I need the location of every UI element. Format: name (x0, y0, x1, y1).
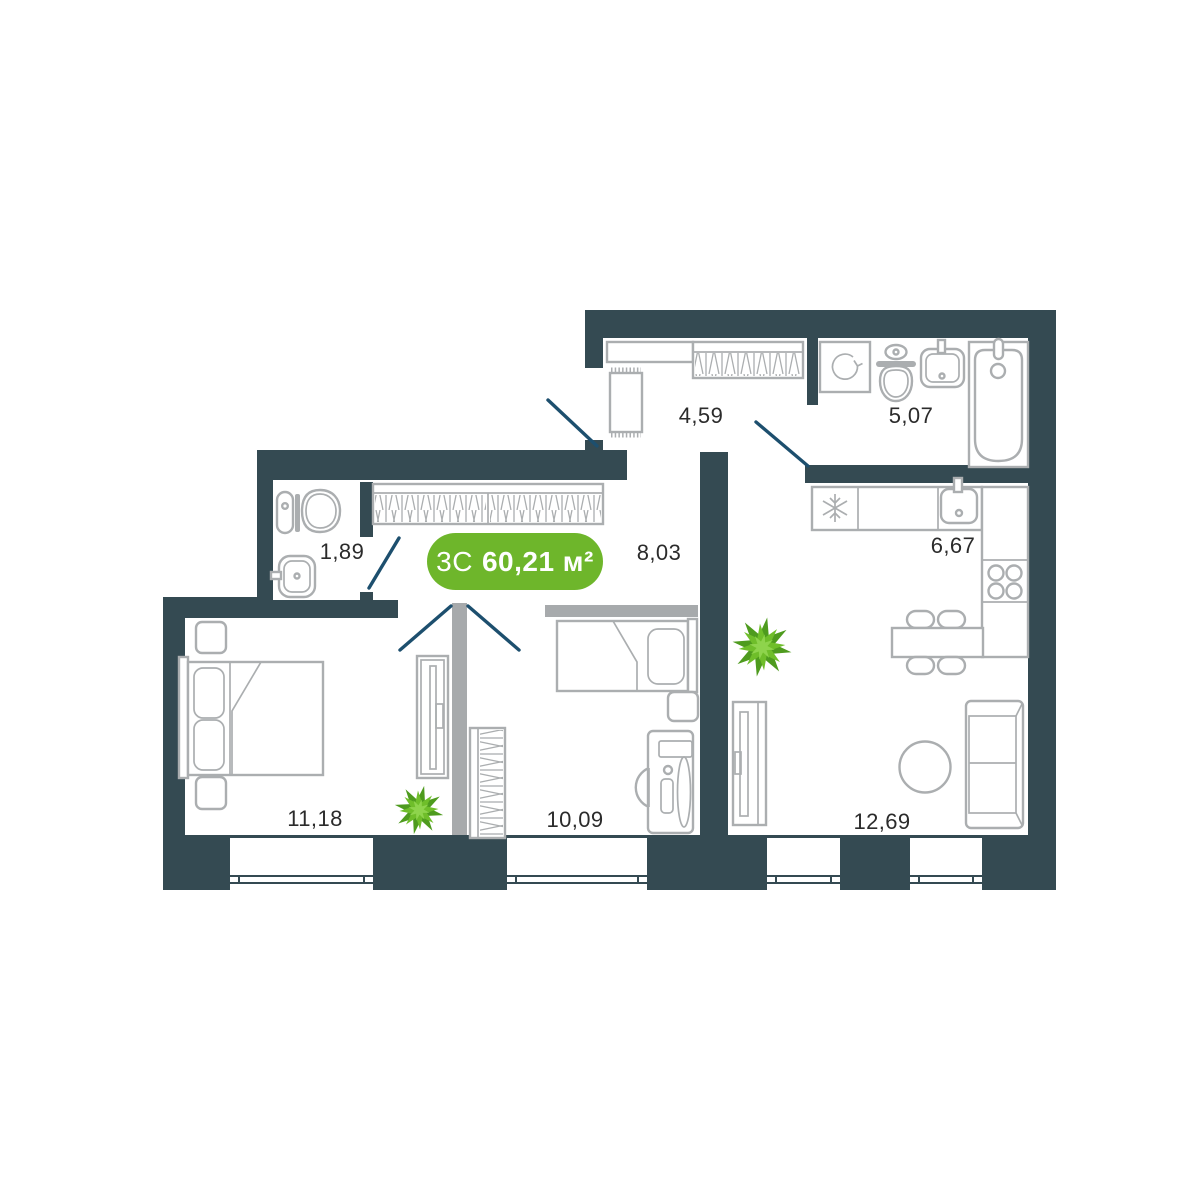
plant (390, 781, 449, 840)
room-area-label-hallway: 8,03 (637, 540, 681, 566)
double-bed (179, 657, 323, 778)
toilet (876, 345, 916, 401)
wardrobe (417, 656, 448, 778)
dining-table-set (892, 611, 983, 674)
room-door-swing (468, 606, 519, 650)
coffee-table (900, 742, 951, 793)
wc-door-swing (369, 538, 399, 588)
kitchen-furniture (727, 478, 1028, 682)
nightstand (196, 777, 226, 809)
chair (938, 611, 965, 628)
rug (610, 370, 642, 435)
room-area-label-bathroom: 5,07 (889, 403, 933, 429)
room-area-label-bedroom: 11,18 (287, 806, 342, 832)
bedroom-door-swing (400, 606, 451, 650)
bathtub (969, 339, 1028, 467)
room-area-label-living-room: 12,69 (853, 809, 910, 835)
tv-stand (733, 702, 766, 825)
sofa (966, 701, 1023, 828)
wardrobe (693, 342, 803, 378)
entry-door-swing (548, 400, 597, 446)
nightstand (196, 622, 226, 653)
floor-plan: 4,59 5,07 1,89 8,03 6,67 11,18 10,09 12,… (0, 0, 1200, 1200)
floor-plan-drawing (0, 0, 1200, 1200)
apartment-area-badge: 3С 60,21 м² (427, 533, 603, 590)
desk (648, 731, 693, 833)
apartment-type-label: 3С (436, 546, 473, 578)
room-area-label-kitchen: 6,67 (931, 533, 975, 559)
single-bed (557, 619, 697, 692)
bathroom-door-swing (756, 422, 808, 466)
room-furniture (470, 619, 698, 838)
kitchen-sink (941, 478, 977, 523)
nightstand (668, 692, 698, 721)
plant (727, 612, 796, 681)
hallway-furniture (373, 484, 603, 524)
sink (271, 556, 315, 597)
dining-table (892, 628, 983, 657)
chair (907, 657, 934, 674)
chair (907, 611, 934, 628)
room-area-label-room: 10,09 (546, 807, 603, 833)
room-area-label-entry-hallway: 4,59 (679, 403, 723, 429)
apartment-area-value: 60,21 м² (482, 546, 594, 578)
chair (938, 657, 965, 674)
sink (921, 340, 964, 387)
room-area-label-wc: 1,89 (320, 539, 364, 565)
wardrobe (470, 728, 505, 838)
shelf (607, 342, 693, 362)
wardrobe (373, 484, 603, 524)
toilet (277, 490, 340, 533)
washing-machine (820, 342, 870, 392)
